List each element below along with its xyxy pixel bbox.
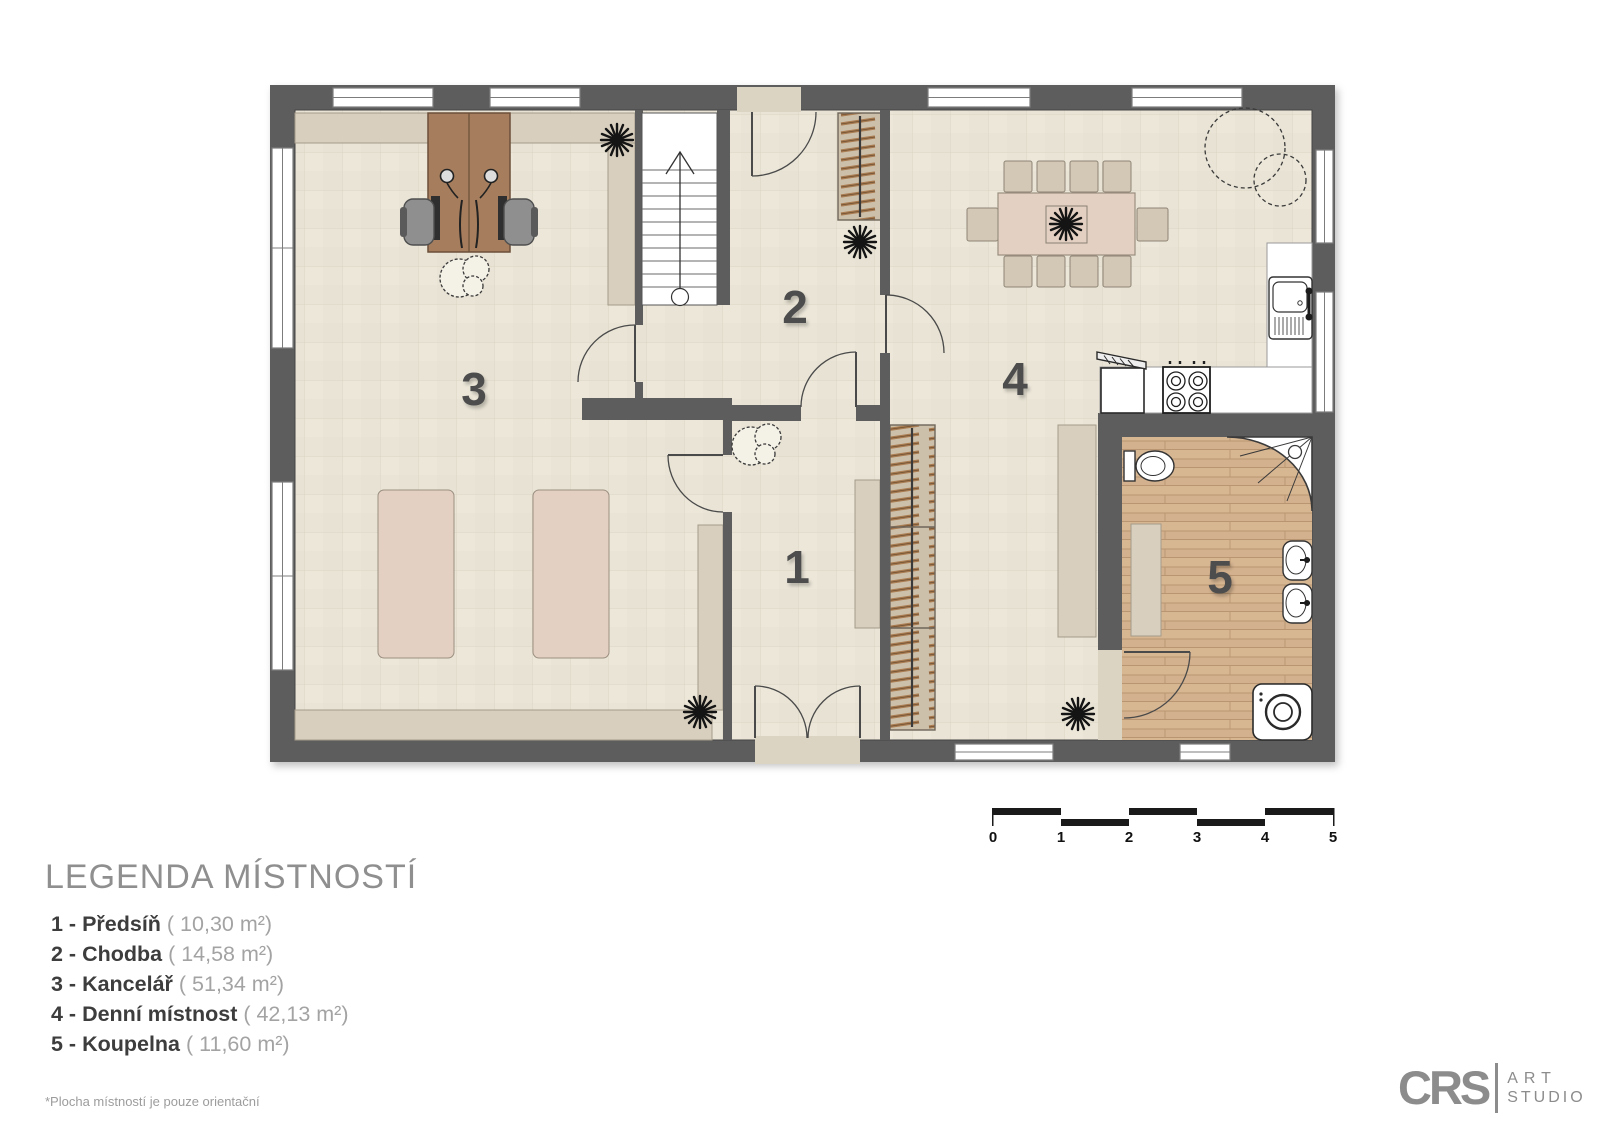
scale-label-1: 1: [1046, 829, 1076, 846]
logo-brand: CRS: [1398, 1060, 1488, 1115]
scale-label-4: 4: [1250, 829, 1280, 846]
legend-item-area: ( 14,58 m²): [168, 942, 273, 966]
hall-bench: [855, 480, 880, 628]
legend-items: 1 - Předsíň ( 10,30 m²) 2 - Chodba ( 14,…: [45, 913, 417, 1056]
legend-item: 5 - Koupelna ( 11,60 m²): [51, 1033, 417, 1056]
room-label-4: 4: [985, 352, 1045, 406]
dining-chair: [1070, 256, 1098, 287]
dining-chair: [1070, 161, 1098, 192]
plant-icon: [1050, 208, 1082, 240]
desk-lamp-icon: [485, 170, 498, 183]
plant-icon: [684, 696, 716, 728]
legend-item: 4 - Denní místnost ( 42,13 m²): [51, 1003, 417, 1026]
logo-word-art: ART: [1507, 1069, 1585, 1088]
plant-icon: [1062, 698, 1094, 730]
legend: LEGENDA MÍSTNOSTÍ 1 - Předsíň ( 10,30 m²…: [45, 858, 417, 1063]
washing-machine: [1253, 684, 1312, 740]
dining-chair: [1103, 256, 1131, 287]
scale-label-2: 2: [1114, 829, 1144, 846]
legend-item-area: ( 51,34 m²): [179, 972, 284, 996]
wardrobe-hall: [838, 113, 882, 220]
legend-item-area: ( 42,13 m²): [243, 1002, 348, 1026]
legend-item-label: 2 - Chodba: [51, 942, 162, 966]
dining-chair: [1004, 161, 1032, 192]
scale-bar: [992, 808, 1335, 826]
legend-item-area: ( 11,60 m²): [186, 1032, 290, 1056]
office-side-shelf: [608, 143, 635, 305]
plant-icon: [844, 226, 876, 258]
legend-item: 1 - Předsíň ( 10,30 m²): [51, 913, 417, 936]
legend-item-label: 4 - Denní místnost: [51, 1002, 237, 1026]
stove: [1163, 361, 1210, 413]
dining-chair: [1037, 256, 1065, 287]
legend-item: 2 - Chodba ( 14,58 m²): [51, 943, 417, 966]
back-door-threshold: [737, 87, 801, 112]
dining-chair: [967, 208, 998, 241]
office-chair: [404, 199, 434, 245]
bathroom-door-threshold: [1098, 650, 1122, 740]
room-label-2: 2: [765, 280, 825, 334]
legend-footnote: *Plocha místností je pouze orientační: [45, 1094, 260, 1109]
wardrobe-livingroom: [890, 425, 935, 730]
dining-chair: [1103, 161, 1131, 192]
legend-item-label: 5 - Koupelna: [51, 1032, 180, 1056]
kitchen-appliance: [1097, 352, 1146, 413]
room-label-1: 1: [767, 540, 827, 594]
scale-label-0: 0: [978, 829, 1008, 846]
staircase: [642, 113, 717, 306]
entry-door-threshold: [755, 736, 860, 764]
desk-lamp-icon: [441, 170, 454, 183]
logo-words: ART STUDIO: [1507, 1069, 1585, 1107]
office-bottom-shelf: [295, 710, 712, 740]
dining-chair: [1037, 161, 1065, 192]
office-lower-side-shelf: [698, 525, 723, 710]
floor-plan-page: 1 2 3 4 5 0 1 2 3 4 5 LEGENDA MÍSTNOSTÍ …: [0, 0, 1600, 1130]
studio-logo: CRS ART STUDIO: [1398, 1060, 1586, 1115]
scale-label-3: 3: [1182, 829, 1212, 846]
legend-item: 3 - Kancelář ( 51,34 m²): [51, 973, 417, 996]
scale-label-5: 5: [1318, 829, 1348, 846]
logo-word-studio: STUDIO: [1507, 1088, 1585, 1107]
toilet: [1124, 451, 1174, 481]
office-chair: [504, 199, 534, 245]
legend-title: LEGENDA MÍSTNOSTÍ: [45, 858, 417, 897]
logo-divider: [1495, 1063, 1498, 1113]
plant-icon: [601, 124, 633, 156]
kitchen-sink: [1269, 277, 1313, 339]
shower-head-icon: [1289, 446, 1302, 459]
legend-item-area: ( 10,30 m²): [167, 912, 272, 936]
dining-chair: [1004, 256, 1032, 287]
livingroom-cabinet: [1058, 425, 1096, 637]
bathroom-cabinet: [1131, 524, 1161, 636]
legend-item-label: 1 - Předsíň: [51, 912, 161, 936]
legend-item-label: 3 - Kancelář: [51, 972, 173, 996]
dining-chair: [1137, 208, 1168, 241]
room-label-3: 3: [444, 362, 504, 416]
room-label-5: 5: [1190, 550, 1250, 604]
